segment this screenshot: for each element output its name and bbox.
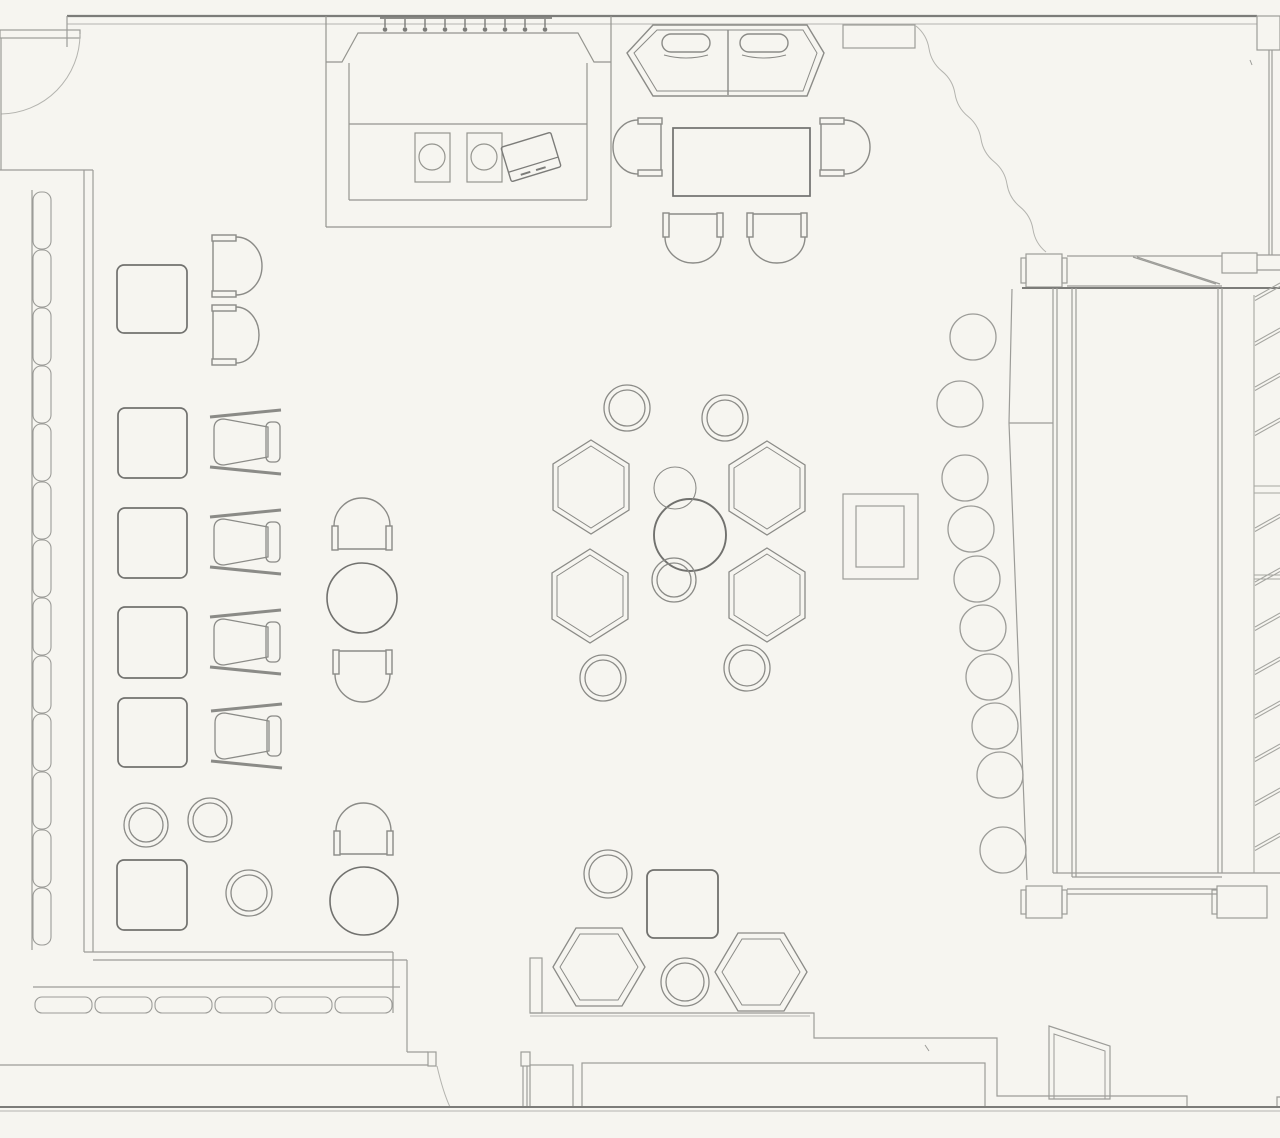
glass-rack-hook-knob-9 — [543, 27, 548, 32]
round-table-chair-n — [332, 498, 392, 550]
booth-cushion-2 — [740, 34, 788, 52]
glass-rack-hook-knob-3 — [423, 27, 428, 32]
layer-center-cluster — [552, 385, 918, 701]
door-hinge-right — [521, 1052, 530, 1066]
stool-left-2-inner — [193, 803, 227, 837]
booth-cushion-2-seam — [742, 55, 786, 58]
plan-mark-2 — [1250, 60, 1252, 65]
stair-tread-1 — [1255, 283, 1280, 301]
cluster-stool-nw-inner — [609, 390, 645, 426]
layer-right-bar — [937, 253, 1280, 918]
bar-column-se-trim-l — [1021, 890, 1026, 914]
register — [501, 132, 561, 182]
armchair-4-rail-bottom — [211, 761, 282, 768]
cluster-stool-se-inner — [729, 650, 765, 686]
cluster-stool-sw-inner — [585, 660, 621, 696]
banquette-cushion-9 — [33, 656, 51, 713]
hex-table-6-inner — [722, 939, 800, 1005]
dining-chair-west-tab — [638, 170, 662, 176]
layer-bar-station — [326, 16, 611, 227]
bar-stool-6 — [960, 605, 1006, 651]
banquette-cushion-bottom-2 — [95, 997, 152, 1013]
square-table-7 — [647, 870, 718, 938]
center-stool-bottom — [652, 558, 696, 602]
square-table-5 — [118, 698, 187, 767]
bar-column-sE2 — [1217, 886, 1267, 918]
stool-left-2 — [188, 798, 232, 842]
dining-chair-south-1-tab — [663, 213, 669, 237]
dining-chair-west-back — [613, 120, 638, 174]
cluster-stool-ne-outer — [702, 395, 748, 441]
layer-left-seating — [117, 235, 398, 935]
dining-chair-east-back — [844, 120, 870, 174]
dining-chair-west — [613, 118, 662, 176]
dining-chair-east-tab — [820, 118, 844, 124]
banquette-cushion-6 — [33, 482, 51, 539]
dining-chair-south-1 — [663, 213, 723, 263]
glass-rack-hook-knob-7 — [503, 27, 508, 32]
dining-chair-south-2-tab — [747, 213, 753, 237]
cluster-stool-nw — [604, 385, 650, 431]
bar-stool-2 — [937, 381, 983, 427]
stool-left-3-outer — [226, 870, 272, 916]
armchair-1-body — [214, 419, 268, 465]
glass-rack-hooks — [383, 19, 548, 32]
stool-left-1-inner — [129, 808, 163, 842]
round-table-chair-s-tab — [386, 650, 392, 674]
cluster-stool-sw — [580, 655, 626, 701]
armchair-1 — [210, 410, 281, 474]
stool-bottom-2 — [661, 958, 709, 1006]
break-squiggle-line — [916, 26, 1046, 252]
tub-chair-1 — [212, 235, 262, 297]
armchair-3-body — [214, 619, 268, 665]
plan-mark-1 — [925, 1045, 929, 1051]
door-hinge-left — [428, 1052, 436, 1066]
banquette-cushion-7 — [33, 540, 51, 597]
banquette-cushion-bottoms — [35, 997, 392, 1013]
cluster-stool-se — [724, 645, 770, 691]
entry-door-leaf — [0, 30, 80, 38]
armchair-1-rail-bottom — [210, 467, 281, 474]
tub-chair-1-tab — [212, 235, 236, 241]
stair-tread-2 — [1255, 328, 1280, 346]
armchair-3-rail-bottom — [210, 667, 281, 674]
hex-table-4-inner — [734, 554, 800, 636]
hex-table-5-inner — [560, 934, 638, 1000]
round-table-chair-n-tab — [332, 526, 338, 550]
cluster-stool-se-outer — [724, 645, 770, 691]
stool-bottom-1-outer — [584, 850, 632, 898]
round-table-chair-s-tab — [333, 650, 339, 674]
armchair-2-body — [214, 519, 268, 565]
square-table-6 — [117, 860, 187, 930]
bar-stool-4 — [948, 506, 994, 552]
round-table-chair-s — [333, 650, 392, 702]
cluster-stool-nw-outer — [604, 385, 650, 431]
armchair-3 — [210, 610, 281, 674]
banquette-cushion-12 — [33, 830, 51, 887]
stair-tread-8 — [1255, 657, 1280, 675]
cluster-stool-ne-inner — [707, 400, 743, 436]
dining-chair-south-1-tab — [717, 213, 723, 237]
hex-table-3-outer — [552, 549, 628, 643]
floor-plan-canvas — [0, 0, 1280, 1138]
booth-hex-outer — [627, 25, 824, 96]
stool-left-1-outer — [124, 803, 168, 847]
round-table-chair-n2 — [334, 803, 393, 855]
hex-table-2-inner — [734, 447, 800, 529]
hex-table-3-inner — [557, 555, 623, 637]
bar-column-ne-trim-l — [1021, 258, 1026, 283]
round-table-chair-s-back — [335, 674, 390, 702]
glass-rack-hook-knob-6 — [483, 27, 488, 32]
stool-left-1 — [124, 803, 168, 847]
floor-box-small — [530, 1065, 573, 1107]
podium-outer — [1049, 1026, 1110, 1099]
banquette-cushions — [33, 192, 51, 945]
coffee-machine-1-dial — [419, 144, 445, 170]
banquette-cushion-4 — [33, 366, 51, 423]
bar-stool-10 — [980, 827, 1026, 873]
square-table-4 — [118, 607, 187, 678]
banquette-cushion-bottom-4 — [215, 997, 272, 1013]
dining-chair-west-tab — [638, 118, 662, 124]
cluster-stool-ne — [702, 395, 748, 441]
round-table-chair-n-back — [334, 498, 390, 526]
stage-step — [582, 1063, 985, 1107]
banquette-cushion-11 — [33, 772, 51, 829]
tub-chair-1-back — [236, 237, 262, 295]
stage-edge — [530, 1013, 1187, 1107]
armchair-4-body — [215, 713, 269, 759]
armchair-4 — [211, 704, 282, 768]
stool-left-3-inner — [231, 875, 267, 911]
coffee-machine-2-dial — [471, 144, 497, 170]
stool-left-2-outer — [188, 798, 232, 842]
bar-column-se-trim-r — [1062, 890, 1067, 914]
stair-tread-11 — [1255, 788, 1280, 806]
banquette-cushion-5 — [33, 424, 51, 481]
wall-closet — [843, 25, 915, 48]
glass-rack-hook-knob-2 — [403, 27, 408, 32]
banquette-cushion-bottom-5 — [275, 997, 332, 1013]
dining-chair-south-1-back — [665, 237, 721, 263]
booth-hex-inner — [634, 30, 817, 91]
stool-bottom-1 — [584, 850, 632, 898]
banquette-cushion-2 — [33, 250, 51, 307]
door-swing-bottom — [437, 1066, 450, 1107]
dining-chair-south-2-back — [749, 237, 805, 263]
armchair-2-rail-bottom — [210, 567, 281, 574]
hex-table-4-outer — [729, 548, 805, 642]
service-stand-outer — [843, 494, 918, 579]
layer-stairs — [1254, 283, 1280, 873]
armchair-1-rail-top — [210, 410, 281, 417]
stool-bottom-2-inner — [666, 963, 704, 1001]
banquette-cushion-13 — [33, 888, 51, 945]
layer-booth-dining — [613, 25, 915, 263]
square-table-3 — [118, 508, 187, 578]
armchair-2-rail-top — [210, 510, 281, 517]
glass-rack-hook-knob-4 — [443, 27, 448, 32]
stair-tread-12 — [1255, 833, 1280, 851]
stair-tread-4 — [1255, 418, 1280, 436]
square-table-2 — [118, 408, 187, 478]
bar-column-ne-trim-r — [1062, 258, 1067, 283]
center-stool-bottom-outer — [652, 558, 696, 602]
armchair-3-rail-top — [210, 610, 281, 617]
armchair-2 — [210, 510, 281, 574]
hex-table-2-outer — [729, 441, 805, 535]
armchair-4-rail-top — [211, 704, 282, 711]
dining-chair-east — [820, 118, 870, 176]
entry-door-swing-arc — [1, 34, 80, 114]
tub-chair-2-back — [236, 307, 259, 363]
podium-inner — [1054, 1034, 1105, 1099]
stool-bottom-2-outer — [661, 958, 709, 1006]
round-table-2 — [330, 867, 398, 935]
band-right-block — [1222, 253, 1257, 273]
back-bar-outline — [326, 33, 611, 62]
wall-stub — [530, 958, 542, 1013]
wall-pier-top-right — [1257, 16, 1280, 50]
banquette-cushion-bottom-1 — [35, 997, 92, 1013]
hex-table-1-inner — [558, 446, 624, 528]
register-key-2 — [536, 167, 546, 170]
square-table-1 — [117, 265, 187, 333]
bar-stool-5 — [954, 556, 1000, 602]
booth-cushion-1-seam — [664, 55, 708, 58]
bar-stool-1 — [950, 314, 996, 360]
glass-rack-hook-knob-8 — [523, 27, 528, 32]
glass-rack-hook-knob-1 — [383, 27, 388, 32]
stair-tread-7 — [1255, 613, 1280, 631]
round-table-1 — [327, 563, 397, 633]
banquette-cushion-3 — [33, 308, 51, 365]
stool-left-3 — [226, 870, 272, 916]
tub-chair-1-tab — [212, 291, 236, 297]
hex-table-5-outer — [553, 928, 645, 1006]
floor-plan — [0, 0, 1280, 1138]
service-stand-inner — [856, 506, 904, 567]
dining-chair-south-2 — [747, 213, 807, 263]
layer-architecture — [0, 16, 1280, 1111]
dining-chair-east-tab — [820, 170, 844, 176]
bar-column-ne — [1026, 254, 1062, 287]
banquette-cushion-1 — [33, 192, 51, 249]
round-table-chair-n2-back — [336, 803, 391, 831]
bar-stool-8 — [972, 703, 1018, 749]
bar-stool-7 — [966, 654, 1012, 700]
bar-column-se — [1026, 886, 1062, 918]
dining-table — [673, 128, 810, 196]
tub-chair-2-tab — [212, 359, 236, 365]
tub-chair-2-tab — [212, 305, 236, 311]
round-table-chair-n2-tab — [387, 831, 393, 855]
bar-stool-3 — [942, 455, 988, 501]
stair-treads — [1255, 283, 1280, 851]
glass-rack-hook-knob-5 — [463, 27, 468, 32]
round-table-chair-n-tab — [386, 526, 392, 550]
hex-table-1-outer — [553, 440, 629, 534]
booth-cushion-1 — [662, 34, 710, 52]
bar-front-edge — [1009, 289, 1027, 880]
stair-tread-9 — [1255, 701, 1280, 719]
ramp-diagonal-a — [1133, 257, 1216, 284]
stool-bottom-1-inner — [589, 855, 627, 893]
hex-table-6-outer — [715, 933, 807, 1011]
stair-tread-10 — [1255, 744, 1280, 762]
dining-chair-south-2-tab — [801, 213, 807, 237]
stair-tread-6 — [1255, 568, 1280, 586]
stair-tread-5 — [1255, 514, 1280, 532]
banquette-cushion-bottom-3 — [155, 997, 212, 1013]
round-table-chair-n2-tab — [334, 831, 340, 855]
register-key-1 — [521, 172, 531, 175]
ramp-diagonal-b — [1137, 257, 1220, 284]
banquette-cushion-10 — [33, 714, 51, 771]
tub-chair-2 — [212, 305, 259, 365]
bar-stool-9 — [977, 752, 1023, 798]
stair-tread-3 — [1255, 373, 1280, 391]
layer-bottom-cluster — [553, 850, 807, 1011]
banquette-cushion-8 — [33, 598, 51, 655]
cluster-stool-sw-outer — [580, 655, 626, 701]
banquette-cushion-bottom-6 — [335, 997, 392, 1013]
